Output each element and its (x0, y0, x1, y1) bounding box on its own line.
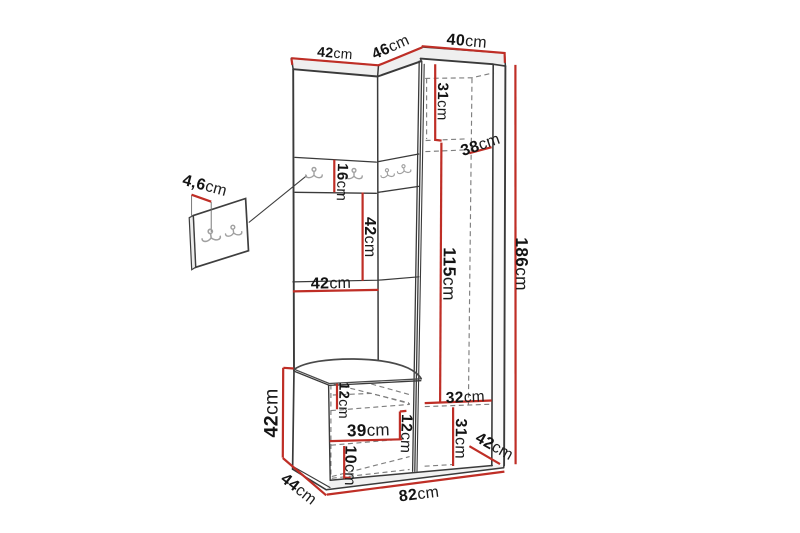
svg-text:42cm: 42cm (361, 217, 378, 257)
svg-text:31cm: 31cm (451, 418, 469, 459)
svg-text:42cm: 42cm (260, 389, 282, 438)
svg-text:12cm: 12cm (335, 382, 352, 419)
svg-text:32cm: 32cm (445, 388, 485, 407)
svg-text:31cm: 31cm (433, 82, 451, 120)
svg-text:115cm: 115cm (439, 247, 459, 301)
svg-text:12cm: 12cm (397, 414, 415, 454)
svg-text:40cm: 40cm (446, 31, 488, 51)
svg-text:42cm: 42cm (311, 275, 352, 293)
svg-text:39cm: 39cm (347, 420, 390, 440)
svg-text:16cm: 16cm (333, 163, 351, 201)
svg-text:42cm: 42cm (317, 43, 354, 62)
svg-text:186cm: 186cm (512, 237, 532, 290)
svg-text:10cm: 10cm (341, 445, 359, 486)
